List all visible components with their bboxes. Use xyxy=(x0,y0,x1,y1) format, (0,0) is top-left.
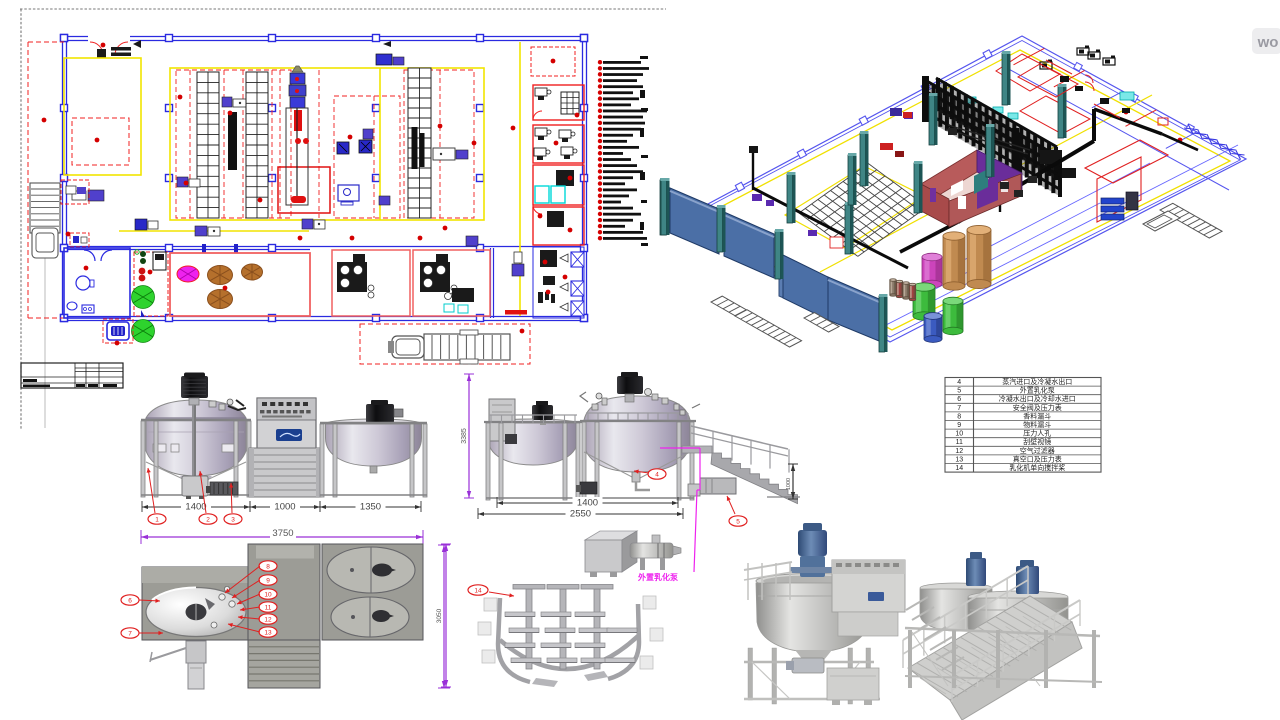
svg-text:12: 12 xyxy=(264,617,272,624)
svg-text:10: 10 xyxy=(955,431,963,438)
svg-text:7: 7 xyxy=(957,405,961,412)
svg-text:1: 1 xyxy=(155,517,159,524)
svg-text:5: 5 xyxy=(957,388,961,395)
svg-text:乳化机单向搅拌桨: 乳化机单向搅拌桨 xyxy=(1009,463,1065,472)
svg-text:外置乳化泵: 外置乳化泵 xyxy=(638,572,678,582)
svg-text:11: 11 xyxy=(265,605,272,612)
svg-text:13: 13 xyxy=(955,456,963,463)
svg-text:6: 6 xyxy=(957,396,961,403)
svg-text:3: 3 xyxy=(231,517,235,524)
svg-text:蒸汽进口及冷凝水出口: 蒸汽进口及冷凝水出口 xyxy=(1002,377,1072,386)
svg-text:3385: 3385 xyxy=(461,428,468,444)
svg-text:13: 13 xyxy=(264,630,272,637)
svg-text:12: 12 xyxy=(955,448,963,455)
svg-text:6: 6 xyxy=(128,598,132,605)
svg-text:真空口及压力表: 真空口及压力表 xyxy=(1013,454,1062,463)
svg-text:10: 10 xyxy=(264,592,272,599)
svg-text:冷凝水出口及冷却水进口: 冷凝水出口及冷却水进口 xyxy=(999,394,1076,403)
svg-text:物料漏斗: 物料漏斗 xyxy=(1023,420,1051,429)
svg-text:安全阀及压力表: 安全阀及压力表 xyxy=(1013,403,1062,412)
svg-text:1000: 1000 xyxy=(274,502,295,513)
svg-text:4: 4 xyxy=(957,379,961,386)
svg-text:wo: wo xyxy=(1257,34,1279,51)
svg-text:3750: 3750 xyxy=(272,528,293,539)
svg-text:1000: 1000 xyxy=(786,478,792,490)
svg-text:2: 2 xyxy=(206,517,210,524)
svg-text:9: 9 xyxy=(957,422,961,429)
svg-text:14: 14 xyxy=(474,588,482,595)
svg-text:7: 7 xyxy=(128,631,132,638)
svg-text:9: 9 xyxy=(266,578,270,585)
svg-text:8: 8 xyxy=(266,564,270,571)
svg-text:1350: 1350 xyxy=(360,502,381,513)
svg-text:3050: 3050 xyxy=(436,608,443,623)
svg-text:空气过滤器: 空气过滤器 xyxy=(1020,446,1055,455)
svg-text:香料漏斗: 香料漏斗 xyxy=(1023,411,1051,420)
svg-text:14: 14 xyxy=(955,465,963,472)
svg-text:压力人孔: 压力人孔 xyxy=(1023,429,1051,438)
svg-text:1400: 1400 xyxy=(577,498,598,509)
svg-text:1400: 1400 xyxy=(185,502,206,513)
svg-text:2550: 2550 xyxy=(570,509,591,520)
svg-text:11: 11 xyxy=(956,439,963,446)
svg-text:外置乳化泵: 外置乳化泵 xyxy=(1020,386,1055,395)
svg-text:8: 8 xyxy=(957,413,961,420)
svg-text:5: 5 xyxy=(736,519,740,526)
svg-text:4: 4 xyxy=(655,472,659,479)
svg-text:刮壁视镜: 刮壁视镜 xyxy=(1023,437,1051,446)
